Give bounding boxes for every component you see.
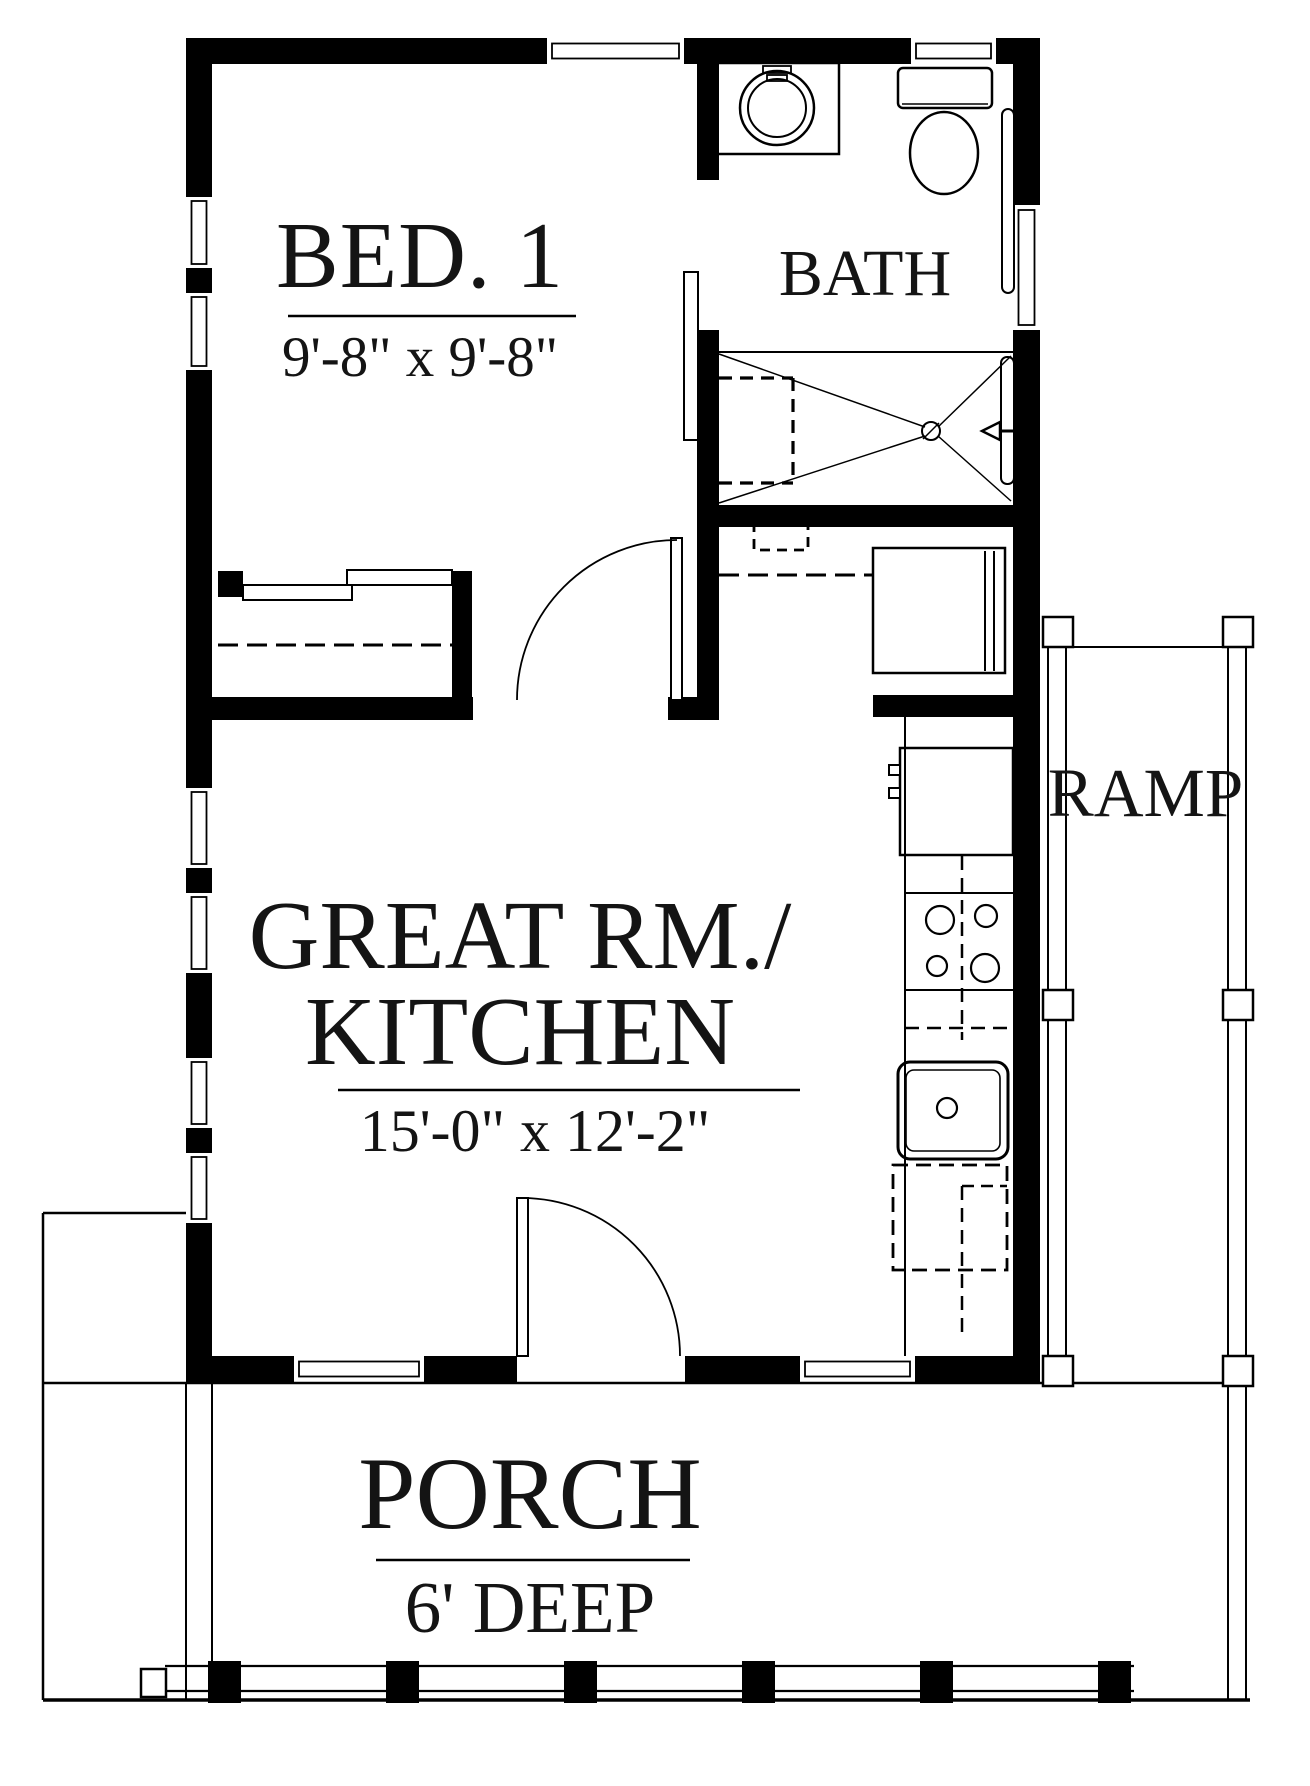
porch-post-icon <box>921 1662 952 1702</box>
cabinet-above-icon <box>754 523 808 550</box>
porch-depth-label: 6' DEEP <box>330 1572 730 1644</box>
porch-corner-post-icon <box>141 1669 166 1697</box>
ramp-post-icon <box>1223 990 1253 1020</box>
window-icon <box>805 1362 910 1377</box>
ramp-label: RAMP <box>1038 760 1253 828</box>
toilet-icon <box>898 68 992 194</box>
ramp-post-icon <box>1043 617 1073 647</box>
great-room-dimensions: 15'-0" x 12'-2" <box>245 1102 825 1161</box>
window-icon <box>192 792 207 864</box>
utility-appliance-icon <box>873 548 1005 673</box>
ramp-post-icon <box>1043 990 1073 1020</box>
porch-post-icon <box>743 1662 774 1702</box>
floor-plan: BED. 1 9'-8" x 9'-8" BATH GREAT RM./ KIT… <box>0 0 1310 1786</box>
refrigerator-icon <box>889 748 1013 855</box>
shower-head-icon <box>982 422 1013 440</box>
dishwasher-icon <box>893 1165 1007 1336</box>
window-icon <box>192 297 207 366</box>
window-icon <box>192 1157 207 1219</box>
porch-railing <box>141 1662 1134 1702</box>
ramp-post-icon <box>1223 617 1253 647</box>
floor-drain-icon <box>922 422 940 440</box>
window-icon <box>299 1362 419 1377</box>
porch-post-icon <box>1099 1662 1130 1702</box>
great-room-label-1: GREAT RM./ <box>205 888 835 984</box>
window-icon <box>1019 210 1035 325</box>
bedroom-dimensions: 9'-8" x 9'-8" <box>210 330 630 386</box>
window-icon <box>552 44 679 59</box>
swing-door-icon <box>517 538 682 700</box>
bath-label: BATH <box>765 242 965 307</box>
bedroom-label: BED. 1 <box>210 210 630 302</box>
porch-post-icon <box>565 1662 596 1702</box>
porch-label: PORCH <box>330 1444 730 1545</box>
pocket-door-icon <box>684 272 698 440</box>
swing-door-icon <box>517 1198 680 1356</box>
shower-pan-icon <box>697 352 1013 503</box>
utility-niche <box>719 523 1005 673</box>
great-room-label-2: KITCHEN <box>205 984 835 1080</box>
window-icon <box>192 201 207 264</box>
window-icon <box>916 44 991 59</box>
kitchen <box>889 717 1013 1356</box>
kitchen-sink-icon <box>898 1062 1008 1159</box>
porch-post-icon <box>387 1662 418 1702</box>
ramp-post-icon <box>1223 1356 1253 1386</box>
porch-post-icon <box>209 1662 240 1702</box>
washer-icon <box>717 63 839 154</box>
doors <box>218 272 698 1356</box>
ramp-post-icon <box>1043 1356 1073 1386</box>
shower-glass-icon <box>1001 357 1014 484</box>
closet-sliding-doors-icon <box>218 570 452 645</box>
grab-bar-icon <box>1002 109 1014 293</box>
